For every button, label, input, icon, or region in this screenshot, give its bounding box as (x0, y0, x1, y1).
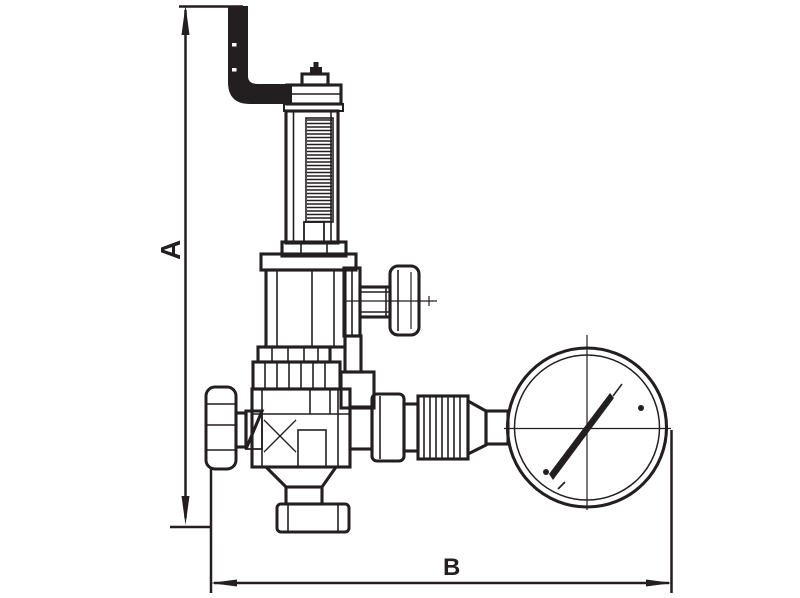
svg-text:B: B (443, 554, 460, 581)
svg-text:A: A (155, 240, 186, 260)
